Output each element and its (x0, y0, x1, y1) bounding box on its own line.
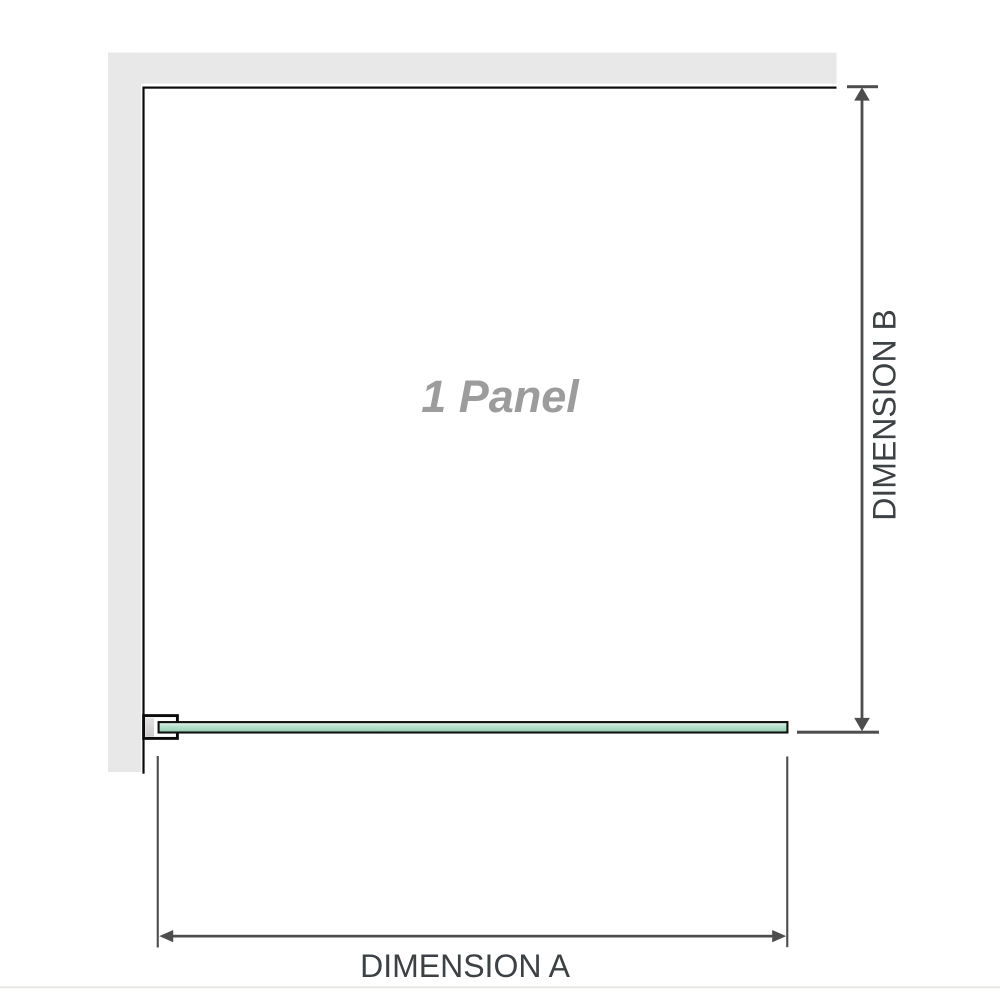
svg-text:1 Panel: 1 Panel (421, 371, 580, 422)
svg-text:DIMENSION B: DIMENSION B (867, 309, 903, 521)
svg-text:DIMENSION A: DIMENSION A (360, 948, 570, 984)
